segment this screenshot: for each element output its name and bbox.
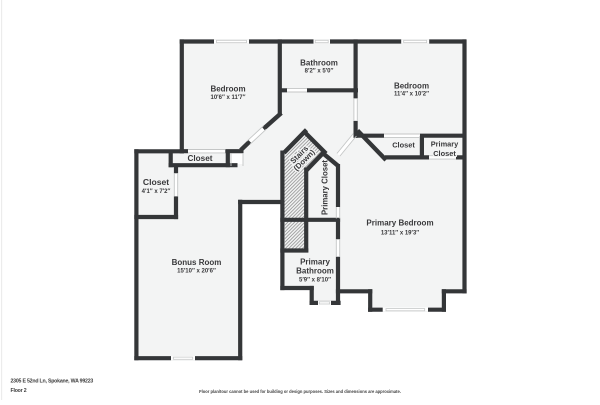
svg-text:Bathroom: Bathroom xyxy=(296,267,334,276)
svg-text:13′11″ x 19′3″: 13′11″ x 19′3″ xyxy=(381,231,419,237)
svg-text:8′2″ x 5′0″: 8′2″ x 5′0″ xyxy=(305,69,334,75)
svg-text:Primary: Primary xyxy=(300,258,330,267)
svg-text:Floor plan/tour cannot be used: Floor plan/tour cannot be used for build… xyxy=(199,389,401,394)
svg-text:4′1″ x 7′2″: 4′1″ x 7′2″ xyxy=(142,189,171,195)
svg-text:2305 E 52nd Ln, Spokane, WA 99: 2305 E 52nd Ln, Spokane, WA 99223 xyxy=(11,379,94,385)
svg-text:Bathroom: Bathroom xyxy=(300,59,338,68)
svg-text:5′9″ x 8′10″: 5′9″ x 8′10″ xyxy=(299,278,331,284)
svg-text:10′6″ x 11′7″: 10′6″ x 11′7″ xyxy=(211,95,246,101)
svg-text:Primary Bedroom: Primary Bedroom xyxy=(366,219,433,228)
svg-text:Primary: Primary xyxy=(431,140,459,149)
svg-text:Bonus Room: Bonus Room xyxy=(172,258,222,267)
svg-text:Closet: Closet xyxy=(187,154,212,163)
svg-text:Primary Closet: Primary Closet xyxy=(320,160,329,215)
svg-text:Closet: Closet xyxy=(433,149,456,158)
svg-text:11′4″ x 10′2″: 11′4″ x 10′2″ xyxy=(394,92,429,98)
svg-text:15′10″ x 20′6″: 15′10″ x 20′6″ xyxy=(177,268,216,274)
svg-text:Bedroom: Bedroom xyxy=(210,85,245,94)
svg-text:Bedroom: Bedroom xyxy=(394,82,429,91)
svg-text:Closet: Closet xyxy=(143,177,169,187)
svg-text:Floor 2: Floor 2 xyxy=(11,388,27,394)
svg-text:Closet: Closet xyxy=(392,141,415,150)
